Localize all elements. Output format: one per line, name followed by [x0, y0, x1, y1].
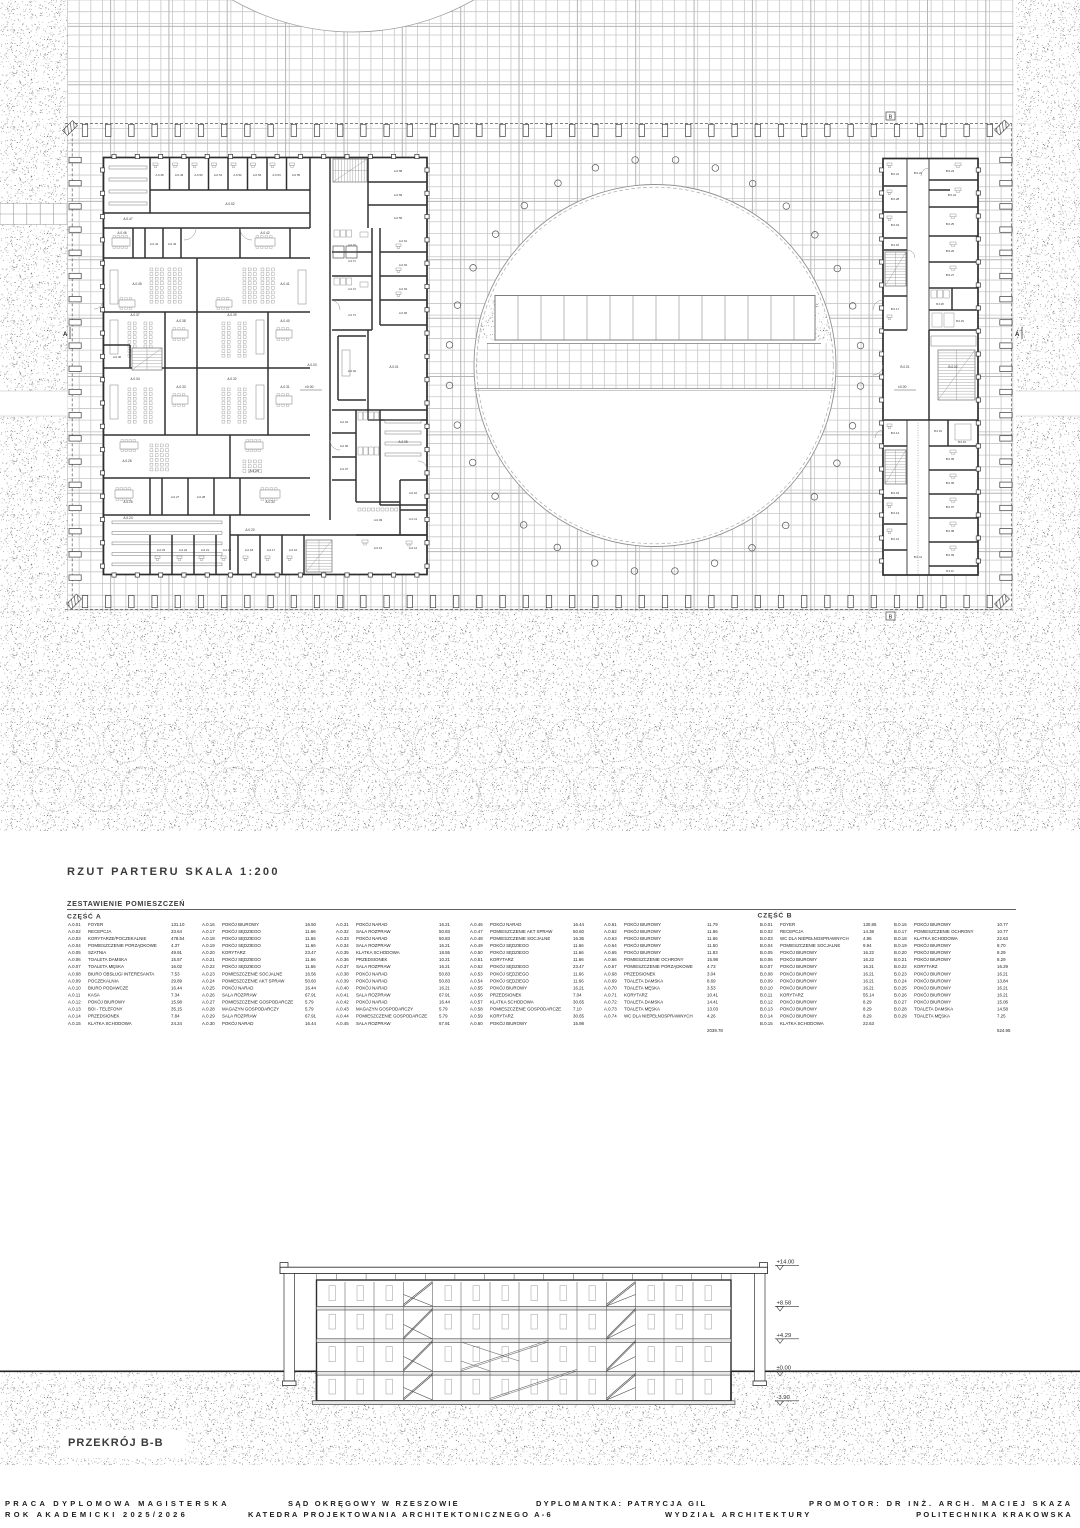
svg-text:A.0.48: A.0.48 [155, 173, 164, 177]
svg-text:POKÓJ BIUROWY: POKÓJ BIUROWY [624, 950, 661, 955]
svg-text:CZĘŚĆ B: CZĘŚĆ B [758, 911, 793, 920]
svg-text:B.0.25: B.0.25 [894, 985, 907, 990]
svg-text:16.44: 16.44 [573, 922, 585, 927]
svg-text:POMIESZCZENIE OCHRONY: POMIESZCZENIE OCHRONY [914, 929, 974, 934]
svg-text:A.0.47: A.0.47 [123, 217, 132, 221]
svg-text:B.0.02: B.0.02 [760, 929, 773, 934]
svg-text:SALA ROZPRAW: SALA ROZPRAW [356, 993, 391, 998]
svg-text:WC DLA NIEPEŁNOSPRAWNYCH: WC DLA NIEPEŁNOSPRAWNYCH [780, 936, 849, 941]
svg-text:POCZEKALNIA: POCZEKALNIA [88, 978, 119, 983]
svg-text:A.0.58: A.0.58 [394, 169, 403, 173]
svg-text:POKÓJ BIUROWY: POKÓJ BIUROWY [624, 929, 661, 934]
svg-text:A.0.22: A.0.22 [179, 548, 188, 552]
svg-text:A.0.27: A.0.27 [202, 1000, 215, 1005]
svg-text:B.0.04: B.0.04 [760, 943, 773, 948]
svg-text:A.0.03: A.0.03 [68, 936, 81, 941]
svg-text:A.0.22: A.0.22 [202, 964, 215, 969]
svg-text:A.0.72: A.0.72 [604, 1000, 617, 1005]
svg-text:16.44: 16.44 [305, 1021, 317, 1026]
svg-text:A.0.10: A.0.10 [68, 985, 81, 990]
svg-text:A.0.51: A.0.51 [470, 957, 483, 962]
svg-text:B.0.18: B.0.18 [891, 243, 899, 247]
svg-text:POMIESZCZENIE PORZĄDKOWE: POMIESZCZENIE PORZĄDKOWE [624, 964, 693, 969]
svg-text:A.0.53: A.0.53 [253, 173, 262, 177]
svg-text:30.65: 30.65 [573, 1000, 585, 1005]
svg-text:A.0.67: A.0.67 [604, 964, 617, 969]
svg-text:A.0.40: A.0.40 [280, 319, 289, 323]
svg-text:A.0.70: A.0.70 [348, 243, 356, 247]
svg-text:A.0.36: A.0.36 [113, 355, 122, 359]
svg-text:A.0.55: A.0.55 [470, 985, 483, 990]
svg-text:A.0.54: A.0.54 [470, 978, 483, 983]
svg-text:524.95: 524.95 [997, 1028, 1011, 1033]
svg-text:+14.00: +14.00 [777, 1260, 795, 1266]
svg-text:SĄD OKRĘGOWY W RZESZOWIE: SĄD OKRĘGOWY W RZESZOWIE [288, 1499, 460, 1508]
svg-text:TOALETA DAMSKA: TOALETA DAMSKA [88, 957, 127, 962]
svg-text:50.83: 50.83 [439, 936, 451, 941]
svg-text:67.91: 67.91 [439, 993, 451, 998]
svg-text:16.21: 16.21 [439, 985, 451, 990]
svg-text:-3.90: -3.90 [777, 1395, 790, 1401]
svg-text:23.47: 23.47 [573, 964, 585, 969]
svg-text:B.0.26: B.0.26 [894, 993, 907, 998]
svg-text:A.0.09: A.0.09 [68, 978, 81, 983]
svg-text:B.0.07: B.0.07 [946, 505, 955, 509]
svg-text:8.29: 8.29 [997, 957, 1006, 962]
svg-text:B.0.17: B.0.17 [894, 929, 907, 934]
svg-text:10.21: 10.21 [439, 957, 451, 962]
svg-text:POMIESZCZENIE AKT SPRAW: POMIESZCZENIE AKT SPRAW [222, 978, 285, 983]
svg-text:11.66: 11.66 [305, 957, 316, 962]
svg-text:16.44: 16.44 [439, 1000, 451, 1005]
svg-text:POMIESZCZENIE SOCJALNE: POMIESZCZENIE SOCJALNE [222, 971, 282, 976]
svg-text:67.91: 67.91 [305, 1014, 317, 1019]
svg-text:B.0.25: B.0.25 [946, 222, 955, 226]
svg-text:A.0.16: A.0.16 [289, 548, 298, 552]
svg-text:TOALETA DAMSKA: TOALETA DAMSKA [914, 1007, 953, 1012]
svg-text:B.0.08: B.0.08 [946, 529, 955, 533]
svg-text:18.55: 18.55 [439, 950, 451, 955]
svg-text:A.0.62: A.0.62 [604, 929, 617, 934]
svg-text:16.36: 16.36 [573, 936, 585, 941]
svg-text:130.85: 130.85 [863, 922, 877, 927]
svg-text:A.0.34: A.0.34 [130, 377, 139, 381]
svg-text:11.66: 11.66 [305, 943, 316, 948]
svg-text:14.38: 14.38 [863, 929, 875, 934]
svg-text:A.0.51: A.0.51 [214, 173, 223, 177]
svg-text:A.0.49: A.0.49 [175, 173, 184, 177]
svg-text:A.0.02: A.0.02 [348, 369, 357, 373]
svg-text:8.29: 8.29 [863, 1007, 872, 1012]
svg-text:B.0.28: B.0.28 [894, 1007, 907, 1012]
svg-text:B.0.16: B.0.16 [894, 922, 907, 927]
svg-text:24.24: 24.24 [171, 1021, 183, 1026]
svg-text:A.0.23: A.0.23 [157, 548, 166, 552]
svg-text:A.0.01: A.0.01 [389, 365, 398, 369]
svg-text:15.98: 15.98 [171, 1000, 183, 1005]
svg-text:22.63: 22.63 [997, 936, 1009, 941]
svg-text:15.98: 15.98 [573, 1021, 585, 1026]
svg-text:A.0.52: A.0.52 [225, 202, 234, 206]
svg-text:MAGAZYN GOSPODARCZY: MAGAZYN GOSPODARCZY [356, 1007, 413, 1012]
svg-text:POMIESZCZENIE PORZĄDKOWE: POMIESZCZENIE PORZĄDKOWE [88, 943, 157, 948]
svg-text:B.0.27: B.0.27 [946, 273, 955, 277]
svg-text:A.0.45: A.0.45 [132, 282, 141, 286]
svg-text:A.0.04: A.0.04 [68, 943, 81, 948]
svg-text:A.0.31: A.0.31 [280, 385, 289, 389]
svg-text:KATEDRA PROJEKTOWANIA ARCHITEK: KATEDRA PROJEKTOWANIA ARCHITEKTONICZNEGO… [248, 1510, 553, 1519]
svg-text:POKÓJ BIUROWY: POKÓJ BIUROWY [780, 957, 817, 962]
svg-text:16.44: 16.44 [305, 985, 317, 990]
svg-text:TOALETA MĘSKA: TOALETA MĘSKA [624, 985, 660, 990]
svg-text:B.0.08: B.0.08 [760, 971, 773, 976]
svg-text:A.0.44: A.0.44 [150, 242, 159, 246]
svg-text:POKÓJ BIUROWY: POKÓJ BIUROWY [914, 950, 951, 955]
svg-text:B.0.20: B.0.20 [894, 950, 907, 955]
svg-text:B.0.05: B.0.05 [760, 950, 773, 955]
svg-text:A.0.17: A.0.17 [202, 929, 215, 934]
svg-text:4.26: 4.26 [707, 1014, 716, 1019]
svg-text:B.0.05: B.0.05 [946, 457, 955, 461]
svg-text:11.66: 11.66 [573, 957, 584, 962]
svg-text:A.0.65: A.0.65 [604, 950, 617, 955]
svg-text:15.98: 15.98 [707, 957, 719, 962]
svg-text:ZESTAWIENIE POMIESZCZEŃ: ZESTAWIENIE POMIESZCZEŃ [67, 899, 185, 908]
svg-text:KORYTARZ: KORYTARZ [490, 1014, 514, 1019]
svg-text:16.21: 16.21 [863, 978, 875, 983]
svg-text:A.0.59: A.0.59 [394, 193, 403, 197]
svg-text:B.0.09: B.0.09 [760, 978, 773, 983]
svg-text:A.0.24: A.0.24 [202, 978, 215, 983]
svg-text:A.0.10: A.0.10 [409, 491, 418, 495]
svg-text:POKÓJ NARAD: POKÓJ NARAD [356, 985, 387, 990]
svg-text:A.0.58: A.0.58 [470, 1007, 483, 1012]
svg-text:11.79: 11.79 [707, 922, 718, 927]
svg-text:B.0.12: B.0.12 [891, 537, 900, 541]
svg-text:POKÓJ NARAD: POKÓJ NARAD [356, 936, 387, 941]
svg-text:3.04: 3.04 [707, 971, 716, 976]
svg-text:A.0.26: A.0.26 [202, 993, 215, 998]
svg-text:7.25: 7.25 [997, 1014, 1006, 1019]
svg-text:5.79: 5.79 [305, 1000, 314, 1005]
svg-text:A.0.70: A.0.70 [604, 985, 617, 990]
svg-text:+8.58: +8.58 [777, 1301, 792, 1307]
svg-text:7.04: 7.04 [573, 993, 582, 998]
svg-text:B.0.11: B.0.11 [760, 993, 773, 998]
svg-text:2039.78: 2039.78 [707, 1028, 723, 1033]
svg-text:A.0.66: A.0.66 [399, 311, 408, 315]
svg-text:POKÓJ BIUROWY: POKÓJ BIUROWY [914, 1000, 951, 1005]
svg-text:11.66: 11.66 [305, 964, 316, 969]
svg-text:A.0.29: A.0.29 [249, 469, 258, 473]
svg-text:POMIESZCZENIE SOCJALNE: POMIESZCZENIE SOCJALNE [490, 936, 550, 941]
svg-text:CZĘŚĆ A: CZĘŚĆ A [67, 912, 101, 921]
svg-text:POKÓJ BIUROWY: POKÓJ BIUROWY [914, 971, 951, 976]
svg-text:SALA ROZPRAW: SALA ROZPRAW [356, 1021, 391, 1026]
svg-text:A.0.48: A.0.48 [470, 936, 483, 941]
svg-text:A.0.35: A.0.35 [336, 950, 349, 955]
svg-text:A.0.37: A.0.37 [336, 964, 349, 969]
svg-text:A.0.43: A.0.43 [336, 1007, 349, 1012]
svg-text:B.0.15: B.0.15 [891, 491, 900, 495]
svg-text:B.0.15: B.0.15 [760, 1021, 773, 1026]
svg-text:30.65: 30.65 [573, 1014, 585, 1019]
svg-text:B.0.07: B.0.07 [760, 964, 773, 969]
svg-text:B.0.14: B.0.14 [760, 1014, 773, 1019]
svg-text:55.14: 55.14 [863, 993, 875, 998]
svg-text:POKÓJ BIUROWY: POKÓJ BIUROWY [780, 964, 817, 969]
svg-text:A.0.72: A.0.72 [348, 287, 356, 291]
svg-text:SALA ROZPRAW: SALA ROZPRAW [222, 1014, 257, 1019]
svg-text:A.0.49: A.0.49 [470, 943, 483, 948]
svg-text:11.66: 11.66 [707, 936, 718, 941]
svg-text:POKÓJ BIUROWY: POKÓJ BIUROWY [624, 936, 661, 941]
svg-text:A.0.09: A.0.09 [374, 518, 383, 522]
svg-text:B.0.03: B.0.03 [934, 429, 942, 433]
svg-text:11.66: 11.66 [305, 929, 316, 934]
svg-text:A.0.18: A.0.18 [245, 548, 254, 552]
svg-text:A.0.30: A.0.30 [265, 500, 274, 504]
svg-text:8.29: 8.29 [863, 1014, 872, 1019]
svg-text:A.0.69: A.0.69 [604, 978, 617, 983]
svg-text:16.02: 16.02 [171, 964, 183, 969]
svg-text:16.21: 16.21 [439, 943, 451, 948]
svg-text:POKÓJ NARAD: POKÓJ NARAD [356, 922, 387, 927]
svg-text:A.0.56: A.0.56 [394, 216, 403, 220]
svg-text:POMIESZCZENIE GOSPODARCZE: POMIESZCZENIE GOSPODARCZE [222, 1000, 293, 1005]
svg-text:49.91: 49.91 [171, 950, 183, 955]
svg-text:A.0.20: A.0.20 [202, 950, 215, 955]
svg-text:B.0.02: B.0.02 [948, 365, 957, 369]
svg-text:A.0.41: A.0.41 [280, 282, 289, 286]
svg-text:A.0.42: A.0.42 [336, 1000, 349, 1005]
svg-text:A.0.06: A.0.06 [68, 957, 81, 962]
svg-text:A.0.27: A.0.27 [171, 495, 180, 499]
svg-text:A.0.59: A.0.59 [470, 1014, 483, 1019]
svg-text:B.0.21: B.0.21 [894, 957, 907, 962]
svg-text:A.0.23: A.0.23 [202, 971, 215, 976]
svg-text:23.47: 23.47 [305, 950, 317, 955]
svg-text:POKÓJ NARAD: POKÓJ NARAD [490, 922, 521, 927]
svg-text:POKÓJ SĘDZIEGO: POKÓJ SĘDZIEGO [490, 971, 529, 976]
svg-text:A.0.53: A.0.53 [470, 971, 483, 976]
svg-text:WYDZIAŁ ARCHITEKTURY: WYDZIAŁ ARCHITEKTURY [665, 1510, 812, 1519]
svg-text:A.0.36: A.0.36 [336, 957, 349, 962]
svg-text:POKÓJ BIUROWY: POKÓJ BIUROWY [780, 950, 817, 955]
svg-text:A.0.66: A.0.66 [604, 957, 617, 962]
svg-text:A.0.73: A.0.73 [348, 313, 356, 317]
svg-text:TOALETA MĘSKA: TOALETA MĘSKA [88, 964, 124, 969]
svg-text:10.41: 10.41 [707, 993, 719, 998]
svg-text:POKÓJ NARAD: POKÓJ NARAD [356, 978, 387, 983]
svg-text:5.79: 5.79 [439, 1014, 448, 1019]
svg-text:50.83: 50.83 [439, 929, 451, 934]
svg-text:A.0.18: A.0.18 [202, 936, 215, 941]
svg-text:A.0.39: A.0.39 [336, 978, 349, 983]
svg-text:478.54: 478.54 [171, 936, 185, 941]
svg-text:A.0.20: A.0.20 [245, 528, 254, 532]
svg-text:PRZEDSIONEK: PRZEDSIONEK [490, 993, 522, 998]
svg-text:+4.29: +4.29 [777, 1333, 792, 1339]
svg-text:67.91: 67.91 [305, 993, 317, 998]
svg-text:B.0.23: B.0.23 [894, 971, 907, 976]
svg-text:10.77: 10.77 [997, 929, 1009, 934]
svg-text:WC DLA NIEPEŁNOSPRAWNYCH: WC DLA NIEPEŁNOSPRAWNYCH [624, 1014, 693, 1019]
svg-text:50.83: 50.83 [439, 971, 451, 976]
svg-text:POKÓJ NARAD: POKÓJ NARAD [356, 1000, 387, 1005]
svg-text:B.0.24: B.0.24 [948, 193, 957, 197]
svg-text:A.0.26: A.0.26 [122, 459, 131, 463]
svg-text:A.0.62: A.0.62 [399, 263, 408, 267]
svg-text:A.0.57: A.0.57 [470, 1000, 483, 1005]
svg-text:PRZEDSIONEK: PRZEDSIONEK [356, 957, 388, 962]
svg-text:16.22: 16.22 [863, 957, 875, 962]
svg-text:KORYTARZE/POCZEKALNIE: KORYTARZE/POCZEKALNIE [88, 936, 146, 941]
svg-text:KLATKA SCHODOWA: KLATKA SCHODOWA [88, 1021, 132, 1026]
svg-text:A.0.54: A.0.54 [272, 173, 281, 177]
svg-text:FOYER: FOYER [88, 922, 103, 927]
svg-text:DYPLOMANTKA: PATRYCJA GIL: DYPLOMANTKA: PATRYCJA GIL [536, 1499, 707, 1508]
svg-text:±0.00: ±0.00 [305, 385, 314, 389]
svg-text:POKÓJ BIUROWY: POKÓJ BIUROWY [490, 1021, 527, 1026]
svg-text:A.0.24: A.0.24 [123, 516, 132, 520]
svg-text:A.0.64: A.0.64 [604, 943, 617, 948]
svg-text:67.91: 67.91 [439, 1021, 451, 1026]
svg-text:B.0.22: B.0.22 [894, 964, 907, 969]
svg-text:SALA ROZPRAW: SALA ROZPRAW [356, 929, 391, 934]
svg-text:33.64: 33.64 [171, 929, 183, 934]
svg-text:B.0.19: B.0.19 [894, 943, 907, 948]
svg-text:A.0.25: A.0.25 [202, 985, 215, 990]
svg-text:131.10: 131.10 [171, 922, 185, 927]
svg-text:POMIESZCZENIE GOSPODARCZE: POMIESZCZENIE GOSPODARCZE [490, 1007, 561, 1012]
svg-text:A.0.05: A.0.05 [68, 950, 81, 955]
svg-text:A.0.32: A.0.32 [227, 377, 236, 381]
svg-text:B.0.17: B.0.17 [891, 307, 900, 311]
svg-text:13.03: 13.03 [707, 1007, 719, 1012]
svg-text:POKÓJ BIUROWY: POKÓJ BIUROWY [914, 985, 951, 990]
svg-text:B.0.21: B.0.21 [891, 172, 900, 176]
svg-text:POKÓJ SĘDZIEGO: POKÓJ SĘDZIEGO [490, 950, 529, 955]
svg-text:B.0.13: B.0.13 [760, 1007, 773, 1012]
svg-text:A.0.61: A.0.61 [399, 239, 408, 243]
svg-text:5.79: 5.79 [305, 1007, 314, 1012]
svg-text:A.0.28: A.0.28 [202, 1007, 215, 1012]
svg-text:B.0.23: B.0.23 [946, 169, 955, 173]
svg-text:35.15: 35.15 [171, 1007, 183, 1012]
svg-text:A.0.73: A.0.73 [604, 1007, 617, 1012]
svg-text:B.0.01: B.0.01 [760, 922, 773, 927]
svg-text:RECEPCJA: RECEPCJA [780, 929, 803, 934]
svg-text:16.50: 16.50 [305, 922, 317, 927]
svg-text:ROK AKADEMICKI 2025/2026: ROK AKADEMICKI 2025/2026 [5, 1510, 188, 1519]
svg-text:16.21: 16.21 [573, 985, 585, 990]
svg-text:TOALETA MĘSKA: TOALETA MĘSKA [914, 1014, 950, 1019]
svg-text:B.0.29: B.0.29 [956, 319, 964, 323]
svg-text:KLATKA SCHODOWA: KLATKA SCHODOWA [914, 936, 958, 941]
svg-text:SZATNIA: SZATNIA [88, 950, 106, 955]
svg-text:SALA ROZPRAW: SALA ROZPRAW [222, 993, 257, 998]
svg-text:11.66: 11.66 [573, 971, 584, 976]
svg-text:POKÓJ BIUROWY: POKÓJ BIUROWY [222, 922, 259, 927]
svg-text:PRZEKRÓJ B-B: PRZEKRÓJ B-B [68, 1436, 164, 1449]
svg-text:A.0.14: A.0.14 [68, 1014, 81, 1019]
svg-text:B.0.28: B.0.28 [936, 302, 944, 306]
svg-text:A.0.07: A.0.07 [68, 964, 81, 969]
svg-text:4.73: 4.73 [707, 964, 716, 969]
svg-text:POKÓJ SĘDZIEGO: POKÓJ SĘDZIEGO [490, 943, 529, 948]
svg-text:4.37: 4.37 [171, 943, 180, 948]
svg-text:A.0.52: A.0.52 [233, 173, 242, 177]
svg-text:A.0.03: A.0.03 [307, 363, 316, 367]
svg-text:11.66: 11.66 [305, 936, 316, 941]
svg-text:A.0.44: A.0.44 [336, 1014, 349, 1019]
svg-text:POKÓJ SĘDZIEGO: POKÓJ SĘDZIEGO [222, 964, 261, 969]
svg-text:POKÓJ BIUROWY: POKÓJ BIUROWY [914, 993, 951, 998]
svg-text:POKÓJ BIUROWY: POKÓJ BIUROWY [780, 985, 817, 990]
svg-text:A.0.29: A.0.29 [202, 1014, 215, 1019]
svg-text:3.53: 3.53 [707, 985, 716, 990]
svg-text:A.0.12: A.0.12 [409, 546, 418, 550]
svg-text:B.0.01: B.0.01 [900, 365, 909, 369]
svg-text:SALA ROZPRAW: SALA ROZPRAW [356, 964, 391, 969]
svg-text:A.0.05: A.0.05 [398, 440, 407, 444]
svg-text:±0.00: ±0.00 [777, 1366, 791, 1372]
svg-text:A.0.63: A.0.63 [399, 287, 408, 291]
svg-text:A.0.40: A.0.40 [336, 985, 349, 990]
svg-text:A.0.32: A.0.32 [336, 929, 349, 934]
svg-text:A.0.46: A.0.46 [470, 922, 483, 927]
svg-text:POKÓJ NARAD: POKÓJ NARAD [222, 1021, 253, 1026]
svg-text:POKÓJ BIUROWY: POKÓJ BIUROWY [914, 978, 951, 983]
svg-text:11.66: 11.66 [573, 978, 584, 983]
svg-text:POMIESZCZENIE AKT SPRAW: POMIESZCZENIE AKT SPRAW [490, 929, 553, 934]
svg-text:A.0.38: A.0.38 [176, 319, 185, 323]
svg-text:A.0.30: A.0.30 [202, 1021, 215, 1026]
svg-text:9.94: 9.94 [863, 943, 872, 948]
svg-text:POKÓJ BIUROWY: POKÓJ BIUROWY [780, 1007, 817, 1012]
svg-text:11.66: 11.66 [573, 943, 584, 948]
svg-text:A.0.71: A.0.71 [348, 259, 356, 263]
svg-text:B.0.09: B.0.09 [946, 553, 955, 557]
svg-text:A.0.61: A.0.61 [604, 922, 617, 927]
svg-text:A.0.08: A.0.08 [68, 971, 81, 976]
svg-text:16.21: 16.21 [439, 922, 451, 927]
svg-text:15.06: 15.06 [997, 1000, 1009, 1005]
svg-text:A.0.50: A.0.50 [470, 950, 483, 955]
svg-text:A.0.46: A.0.46 [117, 231, 126, 235]
svg-text:16.56: 16.56 [305, 971, 317, 976]
svg-text:A.0.01: A.0.01 [68, 922, 81, 927]
svg-text:BIURO PODAWCZE: BIURO PODAWCZE [88, 985, 128, 990]
svg-text:8.29: 8.29 [863, 1000, 872, 1005]
svg-text:B.0.04: B.0.04 [958, 440, 966, 444]
svg-text:4.96: 4.96 [863, 936, 872, 941]
svg-text:POKÓJ SĘDZIEGO: POKÓJ SĘDZIEGO [222, 943, 261, 948]
svg-text:A.0.21: A.0.21 [202, 957, 215, 962]
svg-text:POKÓJ SĘDZIEGO: POKÓJ SĘDZIEGO [490, 964, 529, 969]
svg-text:A.0.02: A.0.02 [68, 929, 81, 934]
svg-text:POMIESZCZENIE SOCJALNE: POMIESZCZENIE SOCJALNE [780, 943, 840, 948]
svg-text:B.0.27: B.0.27 [894, 1000, 907, 1005]
svg-text:A.0.45: A.0.45 [336, 1021, 349, 1026]
svg-text:16.22: 16.22 [863, 950, 875, 955]
svg-text:RZUT PARTERU SKALA 1:200: RZUT PARTERU SKALA 1:200 [67, 866, 280, 878]
svg-text:POMIESZCZENIE GOSPODARCZE: POMIESZCZENIE GOSPODARCZE [356, 1014, 427, 1019]
svg-text:B.0.06: B.0.06 [760, 957, 773, 962]
svg-text:B.0.18: B.0.18 [894, 936, 907, 941]
svg-text:KORYTARZ: KORYTARZ [624, 993, 648, 998]
